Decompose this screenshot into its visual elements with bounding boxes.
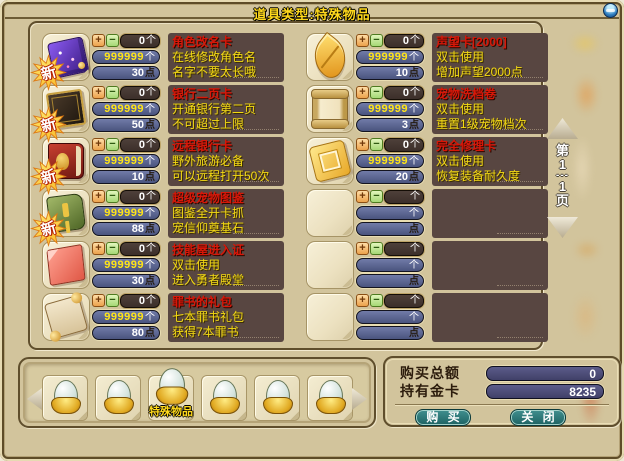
- egg-trophy-icon: [155, 368, 187, 405]
- item-description: 声望卡[2000] 双击使用 增加声望2000点: [432, 33, 548, 82]
- item-desc-line: 七本罪书礼包: [172, 310, 280, 325]
- item-fields: + − 个 个 点: [356, 241, 424, 288]
- stock-field: 个: [356, 206, 424, 220]
- item-description: [432, 189, 548, 238]
- item-fields: + − 0个 999999个 10点: [92, 137, 160, 184]
- item-row-sin-book-pack: + − 0个 999999个 80点 罪书的礼包 七本罪书礼包 获得7本罪书: [42, 293, 288, 345]
- stock-field: 999999个: [92, 206, 160, 220]
- stock-field: 999999个: [92, 258, 160, 272]
- increase-button[interactable]: +: [92, 242, 105, 255]
- stock-field: 999999个: [356, 154, 424, 168]
- item-desc-line: 重置1级宠物档次: [436, 117, 544, 132]
- gold-cards-held-value: 8235: [486, 384, 604, 399]
- total-pages: 1: [547, 180, 578, 194]
- price-field: 30点: [92, 274, 160, 288]
- quantity-field[interactable]: 0个: [384, 34, 424, 48]
- item-desc-line: 开通银行第二页: [172, 102, 280, 117]
- increase-button[interactable]: +: [356, 294, 369, 307]
- pet-reset-scroll-icon: [312, 91, 348, 127]
- item-row-full-repair-card: + − 0个 999999个 20点 完全修理卡 双击使用 恢复装备耐久度: [306, 137, 552, 189]
- item-row-empty: + − 个 个 点: [306, 293, 552, 345]
- price-field: 88点: [92, 222, 160, 236]
- stock-field: 个: [356, 310, 424, 324]
- item-fields: + − 个 个 点: [356, 189, 424, 236]
- item-description: 技能屋进入证 双击使用 进入勇者殿堂: [168, 241, 284, 290]
- item-description: [432, 241, 548, 290]
- title-bar: 道具类型:特殊物品: [5, 2, 619, 19]
- category-slots: 特殊物品: [42, 375, 353, 421]
- quantity-field[interactable]: 个: [384, 294, 424, 308]
- new-badge: 新: [30, 106, 67, 143]
- item-title: 远程银行卡: [172, 138, 280, 154]
- item-icon-slot[interactable]: [42, 293, 90, 341]
- item-row-pet-reset-scroll: + − 0个 999999个 3点 宠物洗档卷 双击使用 重置1级宠物档次: [306, 85, 552, 137]
- decrease-button[interactable]: −: [106, 190, 119, 203]
- price-field: 点: [356, 274, 424, 288]
- item-desc-line: 获得7本罪书: [172, 325, 280, 340]
- purchase-panel: 购买总额 0 持有金卡 8235 购 买 关 闭: [383, 356, 621, 427]
- item-title: 银行二页卡: [172, 86, 280, 102]
- category-label: 特殊物品: [140, 403, 202, 419]
- item-row-empty: + − 个 个 点: [306, 189, 552, 241]
- decrease-button[interactable]: −: [370, 190, 383, 203]
- stock-field: 999999个: [92, 102, 160, 116]
- item-desc-line: 图鉴全开卡抓: [172, 206, 280, 221]
- item-description: [432, 293, 548, 342]
- item-description: 远程银行卡 野外旅游必备 可以远程打开50次: [168, 137, 284, 186]
- reputation-card-icon: [305, 32, 356, 83]
- quantity-field[interactable]: 0个: [384, 138, 424, 152]
- item-desc-line: 双击使用: [436, 102, 544, 117]
- quantity-field[interactable]: 个: [384, 242, 424, 256]
- item-desc-line: 在线修改角色名: [172, 50, 280, 65]
- egg-trophy-icon: [209, 380, 239, 414]
- item-fields: + − 0个 999999个 30点: [92, 33, 160, 80]
- item-desc-line: 名字不要太长哦: [172, 65, 280, 80]
- egg-trophy-icon: [262, 380, 292, 414]
- new-badge: 新: [30, 54, 67, 91]
- category-slot[interactable]: [95, 375, 141, 421]
- price-field: 20点: [356, 170, 424, 184]
- price-field: 10点: [356, 66, 424, 80]
- new-badge: 新: [30, 210, 67, 247]
- decrease-button[interactable]: −: [106, 242, 119, 255]
- item-row-remote-bank-card: 新 + − 0个 999999个 10点 远程银行卡 野外旅游必备 可以远程打开…: [42, 137, 288, 189]
- item-fields: + − 0个 999999个 20点: [356, 137, 424, 184]
- item-fields: + − 0个 999999个 3点: [356, 85, 424, 132]
- item-row-empty: + − 个 个 点: [306, 241, 552, 293]
- increase-button[interactable]: +: [92, 190, 105, 203]
- decrease-button[interactable]: −: [370, 138, 383, 151]
- item-fields: + − 0个 999999个 50点: [92, 85, 160, 132]
- increase-button[interactable]: +: [356, 86, 369, 99]
- item-description: 银行二页卡 开通银行第二页 不可超过上限: [168, 85, 284, 134]
- increase-button[interactable]: +: [92, 138, 105, 151]
- stock-field: 999999个: [92, 154, 160, 168]
- item-desc-line: 野外旅游必备: [172, 154, 280, 169]
- stock-field: 999999个: [356, 50, 424, 64]
- egg-trophy-icon: [50, 380, 80, 414]
- total-amount-label: 购买总额: [400, 363, 460, 383]
- close-button[interactable]: 关 闭: [510, 409, 566, 426]
- tray-scroll-left-icon[interactable]: [27, 388, 42, 410]
- skill-house-pass-icon: [46, 244, 85, 286]
- category-slot-special-items[interactable]: 特殊物品: [148, 375, 194, 421]
- stock-field: 999999个: [92, 310, 160, 324]
- item-title: 声望卡[2000]: [436, 34, 544, 50]
- quantity-field[interactable]: 个: [384, 190, 424, 204]
- total-amount-value: 0: [486, 366, 604, 381]
- empty-item-slot[interactable]: [306, 189, 354, 237]
- item-description: 超级宠物图鉴 图鉴全开卡抓 宠信仰奠基石: [168, 189, 284, 238]
- item-desc-line: 增加声望2000点: [436, 65, 544, 80]
- divider: [395, 404, 609, 405]
- increase-button[interactable]: +: [92, 86, 105, 99]
- page-indicator: 第 1 --- 1 页: [547, 144, 578, 208]
- quantity-field[interactable]: 0个: [120, 294, 160, 308]
- item-fields: + − 0个 999999个 30点: [92, 241, 160, 288]
- decrease-button[interactable]: −: [106, 294, 119, 307]
- item-fields: + − 0个 999999个 88点: [92, 189, 160, 236]
- category-slot[interactable]: [42, 375, 88, 421]
- egg-trophy-icon: [315, 380, 345, 414]
- item-desc-line: 双击使用: [436, 50, 544, 65]
- stock-field: 个: [356, 258, 424, 272]
- full-repair-card-icon: [308, 139, 352, 183]
- item-row-skill-house-pass: + − 0个 999999个 30点 技能屋进入证 双击使用 进入勇者殿堂: [42, 241, 288, 293]
- decrease-button[interactable]: −: [370, 86, 383, 99]
- decrease-button[interactable]: −: [370, 242, 383, 255]
- price-field: 3点: [356, 118, 424, 132]
- item-desc-line: 双击使用: [436, 154, 544, 169]
- quantity-field[interactable]: 0个: [120, 138, 160, 152]
- empty-item-slot[interactable]: [306, 241, 354, 289]
- category-slot[interactable]: [254, 375, 300, 421]
- price-field: 点: [356, 222, 424, 236]
- item-desc-line: 不可超过上限: [172, 117, 280, 132]
- quantity-field[interactable]: 0个: [120, 242, 160, 256]
- increase-button[interactable]: +: [92, 34, 105, 47]
- quantity-field[interactable]: 0个: [120, 86, 160, 100]
- item-description: 宠物洗档卷 双击使用 重置1级宠物档次: [432, 85, 548, 134]
- item-desc-line: 进入勇者殿堂: [172, 273, 280, 288]
- item-desc-line: 可以远程打开50次: [172, 169, 280, 184]
- item-desc-line: 恢复装备耐久度: [436, 169, 544, 184]
- price-field: 点: [356, 326, 424, 340]
- quantity-field[interactable]: 0个: [384, 86, 424, 100]
- item-title: 罪书的礼包: [172, 294, 280, 310]
- tray-scroll-right-icon[interactable]: [352, 388, 367, 410]
- item-icon-slot[interactable]: [42, 241, 90, 289]
- item-desc-line: 宠信仰奠基石: [172, 221, 280, 236]
- decrease-button[interactable]: −: [106, 34, 119, 47]
- new-badge: 新: [30, 158, 67, 195]
- price-field: 80点: [92, 326, 160, 340]
- buy-button[interactable]: 购 买: [415, 409, 471, 426]
- price-field: 30点: [92, 66, 160, 80]
- price-field: 10点: [92, 170, 160, 184]
- category-tray: 特殊物品: [18, 357, 376, 428]
- item-row-super-pet-atlas: 新 + − 0个 999999个 88点 超级宠物图鉴 图鉴全开卡抓 宠信仰奠基…: [42, 189, 288, 241]
- increase-button[interactable]: +: [356, 138, 369, 151]
- category-slot[interactable]: [201, 375, 247, 421]
- item-list-panel: 新 + − 0个 999999个 30点 角色改名卡 在线修改角色名 名字不要太…: [28, 21, 543, 350]
- item-description: 罪书的礼包 七本罪书礼包 获得7本罪书: [168, 293, 284, 342]
- item-title: 完全修理卡: [436, 138, 544, 154]
- quantity-field[interactable]: 0个: [120, 34, 160, 48]
- item-fields: + − 0个 999999个 10点: [356, 33, 424, 80]
- item-description: 角色改名卡 在线修改角色名 名字不要太长哦: [168, 33, 284, 82]
- increase-button[interactable]: +: [92, 294, 105, 307]
- quantity-field[interactable]: 0个: [120, 190, 160, 204]
- item-title: 宠物洗档卷: [436, 86, 544, 102]
- item-title: 超级宠物图鉴: [172, 190, 280, 206]
- item-fields: + − 个 个 点: [356, 293, 424, 340]
- increase-button[interactable]: +: [356, 34, 369, 47]
- item-title: 技能屋进入证: [172, 242, 280, 258]
- category-slot[interactable]: [307, 375, 353, 421]
- item-icon-slot[interactable]: [306, 33, 354, 81]
- egg-trophy-icon: [103, 380, 133, 414]
- stock-field: 999999个: [356, 102, 424, 116]
- item-icon-slot[interactable]: [306, 137, 354, 185]
- item-row-reputation-card: + − 0个 999999个 10点 声望卡[2000] 双击使用 增加声望20…: [306, 33, 552, 85]
- close-icon[interactable]: [603, 3, 618, 18]
- price-field: 50点: [92, 118, 160, 132]
- decrease-button[interactable]: −: [106, 138, 119, 151]
- decrease-button[interactable]: −: [370, 34, 383, 47]
- item-description: 完全修理卡 双击使用 恢复装备耐久度: [432, 137, 548, 186]
- decrease-button[interactable]: −: [370, 294, 383, 307]
- item-column-left: 新 + − 0个 999999个 30点 角色改名卡 在线修改角色名 名字不要太…: [42, 33, 288, 345]
- stock-field: 999999个: [92, 50, 160, 64]
- gold-cards-held-label: 持有金卡: [400, 381, 460, 401]
- item-row-rename-card: 新 + − 0个 999999个 30点 角色改名卡 在线修改角色名 名字不要太…: [42, 33, 288, 85]
- decrease-button[interactable]: −: [106, 86, 119, 99]
- increase-button[interactable]: +: [356, 190, 369, 203]
- item-row-bank-page-card: 新 + − 0个 999999个 50点 银行二页卡 开通银行第二页 不可超过上…: [42, 85, 288, 137]
- item-shop-window: 道具类型:特殊物品 新 + − 0个 999999个: [0, 0, 624, 461]
- sin-book-pack-icon: [44, 295, 89, 340]
- item-icon-slot[interactable]: [306, 85, 354, 133]
- item-desc-line: 双击使用: [172, 258, 280, 273]
- item-title: 角色改名卡: [172, 34, 280, 50]
- empty-item-slot[interactable]: [306, 293, 354, 341]
- increase-button[interactable]: +: [356, 242, 369, 255]
- item-fields: + − 0个 999999个 80点: [92, 293, 160, 340]
- item-column-right: + − 0个 999999个 10点 声望卡[2000] 双击使用 增加声望20…: [306, 33, 552, 345]
